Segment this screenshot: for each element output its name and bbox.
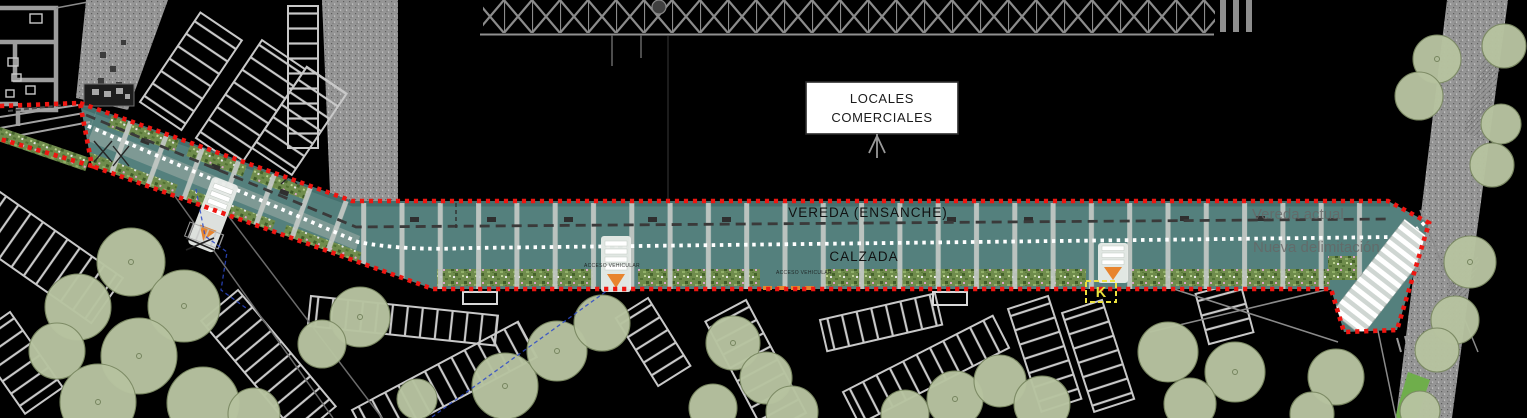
vereda-ensanche-label: VEREDA (ENSANCHE) [788,205,948,220]
crosswalk-right-middle [1098,243,1128,283]
tree [1138,322,1198,382]
tree [1395,72,1443,120]
callout-line1: LOCALES [850,91,914,106]
site-plan: K VEREDA (ENSANCHE) CALZADA Vereda actua… [0,0,1527,418]
tree [1470,143,1514,187]
vereda-actual-label: Vereda actual [1252,206,1344,223]
tree [1444,236,1496,288]
nueva-delimitacion-label: Nueva delimitación [1253,239,1380,256]
calzada-label: CALZADA [829,249,898,264]
callout-line2: COMERCIALES [831,110,932,125]
tree [1482,24,1526,68]
tree [574,295,630,351]
tree [298,320,346,368]
tree [1415,328,1459,372]
acceso-vehicular-label: ACCESO VEHICULAR [584,263,640,269]
tree [472,353,538,418]
kiosk-label: K [1096,285,1107,301]
tree [397,379,437,418]
parking-row [288,6,318,148]
tree [1481,104,1521,144]
acceso-vehicular-label: ACCESO VEHICULAR [776,270,832,276]
site-plan-svg: K VEREDA (ENSANCHE) CALZADA Vereda actua… [0,0,1527,418]
